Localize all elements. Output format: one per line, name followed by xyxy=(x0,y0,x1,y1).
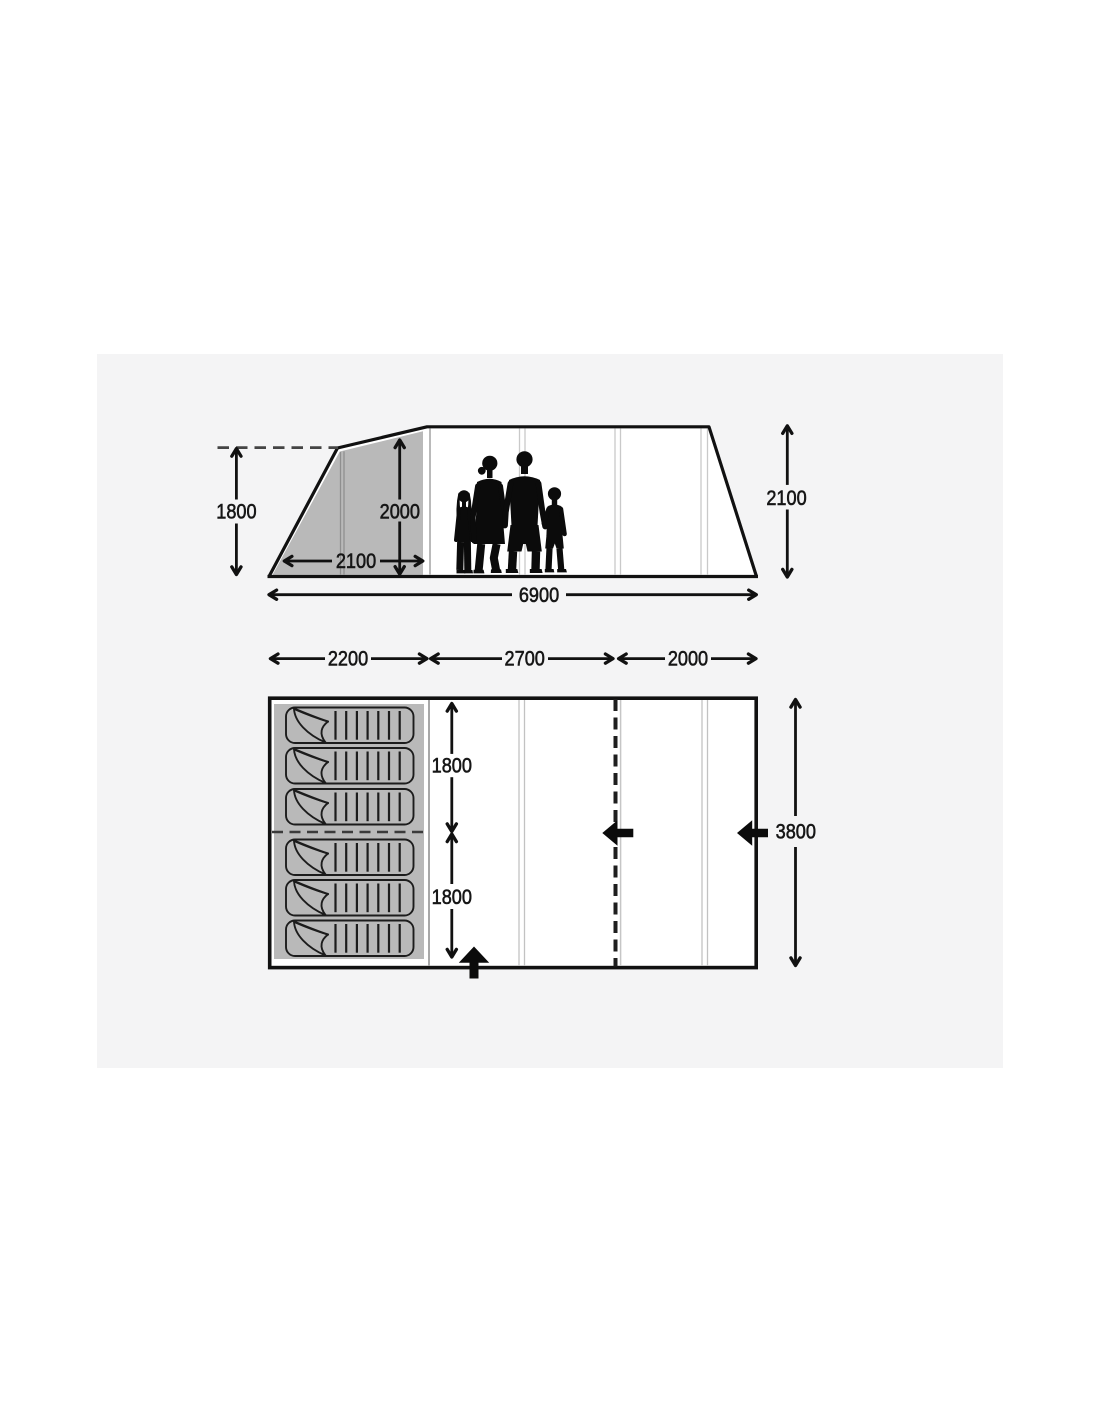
svg-text:6900: 6900 xyxy=(519,584,559,607)
svg-text:3800: 3800 xyxy=(776,821,816,844)
svg-text:2000: 2000 xyxy=(380,500,420,523)
svg-text:1800: 1800 xyxy=(216,500,256,523)
svg-text:1800: 1800 xyxy=(432,755,472,778)
svg-text:2000: 2000 xyxy=(668,647,708,670)
svg-text:1800: 1800 xyxy=(432,886,472,909)
svg-text:2200: 2200 xyxy=(328,647,368,670)
svg-text:2700: 2700 xyxy=(505,647,545,670)
svg-text:2100: 2100 xyxy=(336,550,376,573)
svg-text:2100: 2100 xyxy=(766,487,806,510)
